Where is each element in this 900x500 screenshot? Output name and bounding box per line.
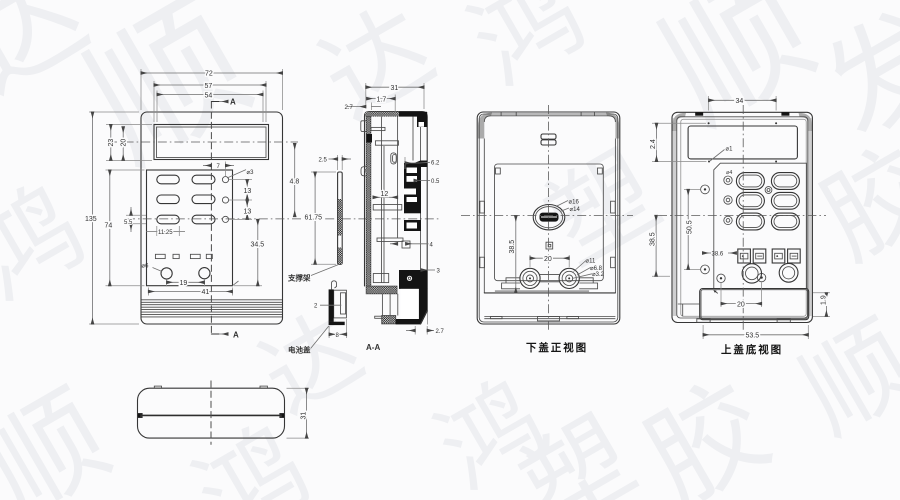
svg-text:⌀14: ⌀14 [570,207,581,213]
svg-text:A: A [230,98,236,107]
svg-text:135: 135 [85,216,97,223]
svg-text:57: 57 [205,83,213,90]
svg-text:38.6: 38.6 [712,252,724,258]
svg-text:A-A: A-A [366,343,380,352]
svg-text:2.7: 2.7 [436,329,445,335]
svg-text:2.5: 2.5 [319,158,328,164]
svg-text:支撑架: 支撑架 [287,273,311,283]
svg-text:A: A [233,330,239,339]
svg-text:23: 23 [108,139,115,147]
svg-text:6.2: 6.2 [431,161,440,167]
svg-text:72: 72 [205,71,213,78]
svg-text:50.5: 50.5 [687,220,694,234]
svg-text:⌀16: ⌀16 [569,200,580,206]
svg-text:2.7: 2.7 [345,105,354,111]
svg-text:1.7: 1.7 [377,96,387,103]
svg-text:31: 31 [391,85,399,92]
svg-text:38.5: 38.5 [650,232,657,246]
svg-text:34: 34 [736,98,744,105]
svg-text:⌀3.2: ⌀3.2 [592,272,605,278]
svg-text:4.8: 4.8 [290,179,300,186]
svg-text:⌀3: ⌀3 [247,170,255,176]
svg-text:34.5: 34.5 [251,242,265,249]
svg-text:1.9: 1.9 [821,295,828,305]
svg-text:13: 13 [244,188,252,195]
svg-text:⌀1: ⌀1 [726,147,734,153]
svg-text:11.25: 11.25 [158,230,173,236]
svg-text:20: 20 [544,256,552,263]
svg-text:⌀6.8: ⌀6.8 [590,266,603,272]
svg-text:⌀11: ⌀11 [586,259,597,265]
svg-text:61.75: 61.75 [305,215,323,222]
svg-text:0.5: 0.5 [431,179,440,185]
svg-text:54: 54 [205,92,213,99]
svg-text:53.5: 53.5 [746,333,760,340]
svg-text:下盖正视图: 下盖正视图 [526,341,588,354]
svg-text:12: 12 [381,191,389,198]
svg-text:⌀4: ⌀4 [726,170,732,176]
svg-text:74: 74 [105,223,113,230]
svg-text:电池盖: 电池盖 [288,345,311,355]
svg-text:⌀6: ⌀6 [142,264,150,270]
svg-text:上盖底视图: 上盖底视图 [721,343,783,356]
svg-text:20: 20 [121,139,128,147]
svg-text:2.4: 2.4 [650,139,657,149]
svg-text:38.5: 38.5 [509,240,516,254]
svg-text:5.5: 5.5 [124,220,133,226]
svg-text:31: 31 [301,412,308,420]
svg-text:20: 20 [737,301,745,308]
svg-text:19: 19 [180,280,188,287]
svg-text:41: 41 [202,289,210,296]
svg-text:13: 13 [244,208,252,215]
